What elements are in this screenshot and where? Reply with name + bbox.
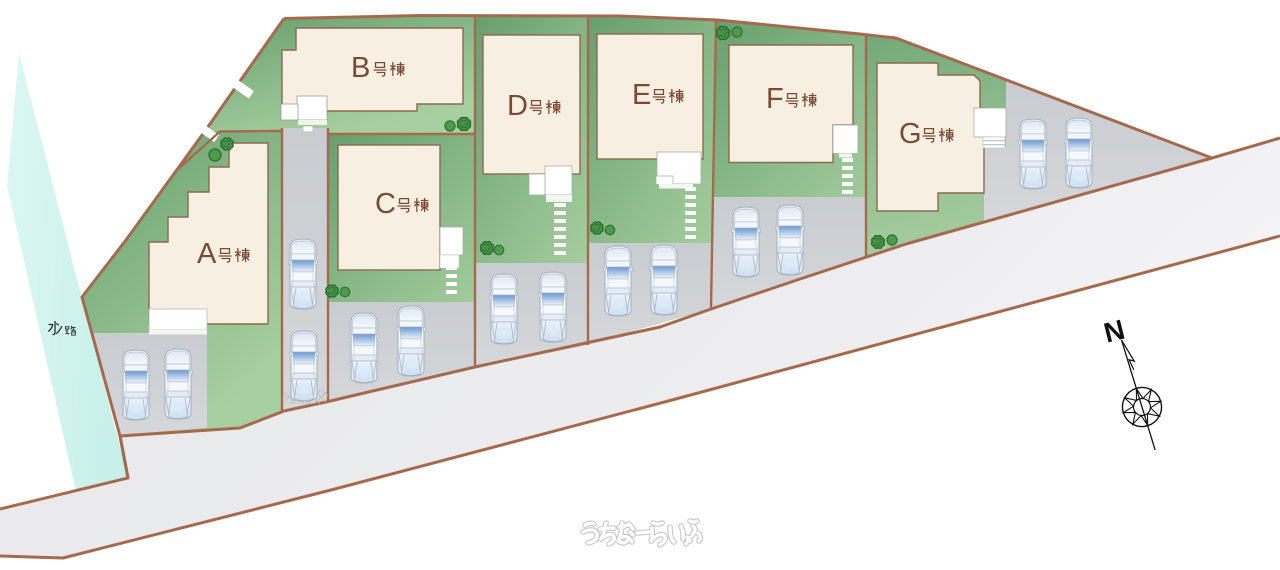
svg-text:E: E <box>632 79 651 111</box>
svg-text:C: C <box>375 188 396 220</box>
svg-text:D: D <box>507 90 528 122</box>
svg-text:F: F <box>766 83 784 115</box>
svg-text:A: A <box>197 238 217 270</box>
svg-text:B: B <box>351 52 370 84</box>
svg-text:G: G <box>899 118 922 150</box>
